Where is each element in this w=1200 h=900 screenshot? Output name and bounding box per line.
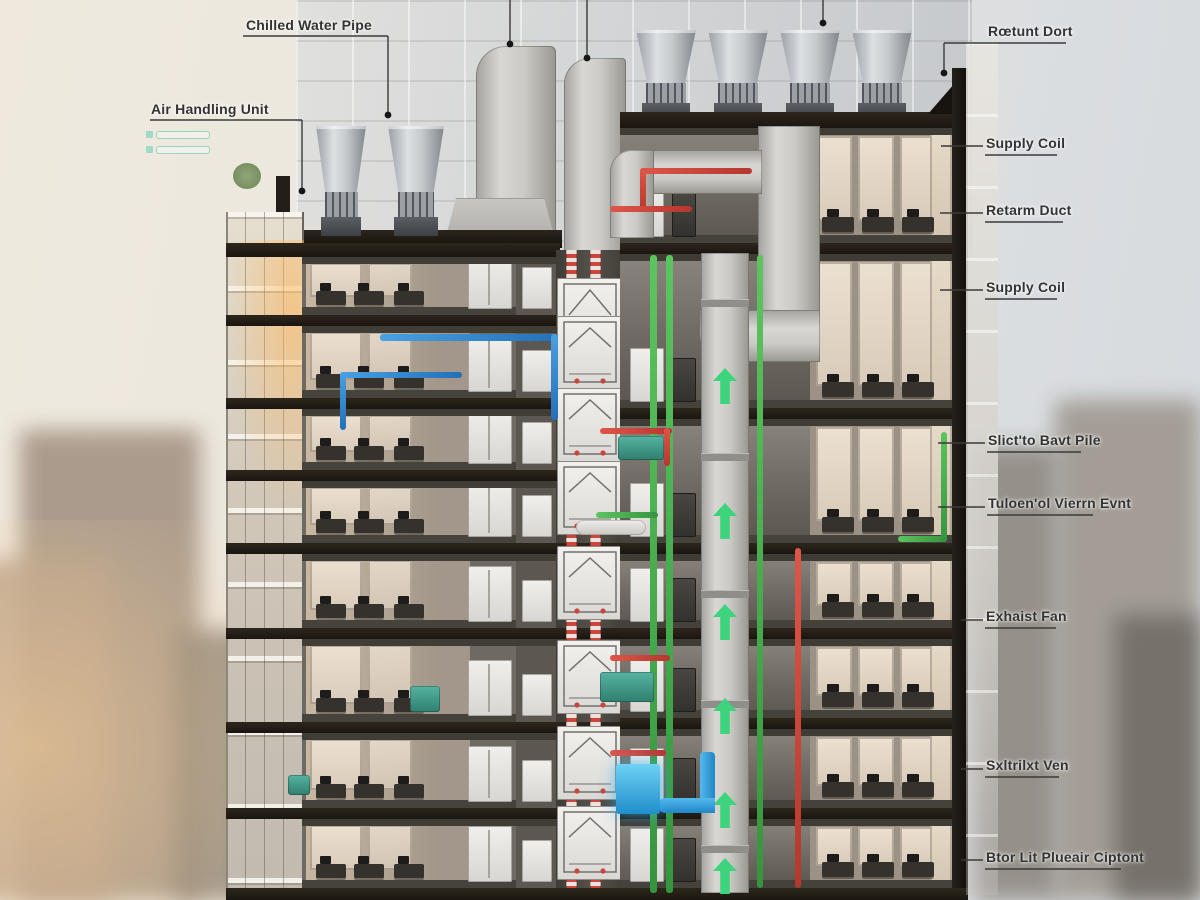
desk <box>862 602 894 617</box>
white-pipe-run <box>576 520 646 535</box>
monitor <box>907 509 919 517</box>
cooling-tower-shell <box>388 126 444 194</box>
office-window <box>858 262 894 386</box>
desk <box>316 519 346 533</box>
cabinet-doors <box>488 412 490 460</box>
utility-box <box>522 840 552 882</box>
monitor <box>320 366 331 374</box>
cooling-tower-roof-1 <box>636 30 696 118</box>
top-floor-duct-drop <box>610 150 654 238</box>
desk <box>354 784 384 798</box>
cooling-tower-base <box>321 217 361 236</box>
office-window <box>816 427 852 521</box>
chilled-pipe-h <box>380 334 558 341</box>
desk <box>862 862 894 877</box>
monitor <box>358 511 369 519</box>
left-tower-floor <box>302 819 560 888</box>
ahu-face-diagram <box>557 316 623 390</box>
red-run-h <box>610 655 670 661</box>
desk <box>316 604 346 618</box>
exhaust-fan-label: Exhaist Fan <box>986 608 1067 624</box>
monitor <box>907 684 919 692</box>
desk <box>394 446 424 460</box>
chiller-unit <box>600 672 654 702</box>
air-handling-unit-cabinet <box>557 546 623 620</box>
desk <box>902 782 934 797</box>
mech-cabinet-dark <box>672 668 696 712</box>
return-duct-label: Retarm Duct <box>986 202 1071 218</box>
ceiling-strip <box>302 554 560 561</box>
left-tower-floor <box>302 554 560 628</box>
mech-cabinet-dark <box>672 193 696 237</box>
floor-slab <box>226 315 560 326</box>
legend-chip <box>146 131 153 138</box>
monitor <box>320 596 331 604</box>
desk <box>354 864 384 878</box>
mech-cabinet <box>630 568 664 622</box>
monitor <box>867 684 879 692</box>
hot-water-pipe <box>795 548 801 888</box>
chilled-water-pipe-label: Chilled Water Pipe <box>246 17 372 33</box>
bright-blue-pipe-h <box>658 798 715 813</box>
desk <box>316 291 346 305</box>
office-window <box>310 645 362 704</box>
equipment-cabinet <box>468 566 512 622</box>
cabinet-doors <box>488 664 490 712</box>
cabinet-doors <box>488 340 490 388</box>
cooling-tower-base <box>394 217 439 236</box>
cooling-tower-left-1 <box>316 126 366 236</box>
office-window <box>816 262 852 386</box>
left-tower-floor <box>302 733 560 808</box>
utility-box <box>522 350 552 392</box>
monitor <box>867 209 879 217</box>
chilled-pipe-v <box>340 372 346 430</box>
desk <box>354 291 384 305</box>
monitor <box>907 854 919 862</box>
desk <box>354 604 384 618</box>
monitor <box>867 774 879 782</box>
supply-coil-lower-label: Supply Coil <box>986 279 1065 295</box>
cooling-tower-roof-2 <box>708 30 768 118</box>
legend-swatch-box <box>156 146 210 154</box>
cooling-tower-lattice <box>718 83 758 104</box>
desk <box>822 517 854 532</box>
mech-cabinet-dark <box>672 838 696 882</box>
monitor <box>907 594 919 602</box>
mech-cabinet <box>630 828 664 882</box>
monitor <box>320 856 331 864</box>
cooling-tower-lattice <box>325 192 358 218</box>
equipment-cabinet <box>468 826 512 882</box>
pipe-callout-label: Slict'to Bavt Pile <box>988 432 1101 448</box>
building-cutaway-illustration: Chilled Water PipeAir Handling UnitRœtun… <box>0 0 1200 900</box>
utility-box <box>522 760 552 802</box>
monitor <box>867 374 879 382</box>
red-run-h <box>610 206 692 212</box>
ahu-face-diagram <box>557 546 623 620</box>
monitor <box>398 438 409 446</box>
bottom-slab <box>226 888 968 900</box>
monitor <box>358 283 369 291</box>
utility-box <box>522 495 552 537</box>
monitor <box>320 283 331 291</box>
monitor <box>827 509 839 517</box>
mech-unit-teal <box>410 686 440 712</box>
cooling-tower-lattice <box>646 83 686 104</box>
monitor <box>358 596 369 604</box>
ceiling-strip <box>302 481 560 488</box>
monitor <box>358 690 369 698</box>
desk <box>394 864 424 878</box>
cooling-tower-roof-3 <box>780 30 840 118</box>
utility-box <box>522 267 552 309</box>
cabinet-doors <box>488 485 490 533</box>
red-run-v <box>664 428 670 466</box>
ahu-face-diagram <box>557 806 623 880</box>
ceiling-strip <box>302 326 560 333</box>
monitor <box>867 854 879 862</box>
floor-slab <box>226 808 560 819</box>
desk <box>822 862 854 877</box>
monitor <box>320 776 331 784</box>
floor-slab <box>226 628 560 639</box>
desk <box>316 446 346 460</box>
mech-cabinet-dark <box>672 358 696 402</box>
desk <box>862 382 894 397</box>
cooling-tower-shell <box>780 30 840 85</box>
monitor <box>867 594 879 602</box>
left-tower-interior <box>302 250 560 895</box>
cooling-tower-shell <box>708 30 768 85</box>
monitor <box>907 374 919 382</box>
mech-cabinet-dark <box>672 493 696 537</box>
return-duct-top-label: Rœtunt Dort <box>988 23 1073 39</box>
cooling-tower-lattice <box>790 83 830 104</box>
monitor <box>907 774 919 782</box>
desk <box>862 692 894 707</box>
cabinet-doors <box>488 257 490 305</box>
cabinet-doors <box>488 570 490 618</box>
side-vent-callout-label: Sxltrilxt Ven <box>986 757 1069 773</box>
monitor <box>827 209 839 217</box>
monitor <box>358 856 369 864</box>
desk <box>354 446 384 460</box>
desk <box>862 217 894 232</box>
desk <box>902 602 934 617</box>
cooling-tower-left-2 <box>388 126 444 236</box>
red-run-h <box>600 428 672 434</box>
cooling-tower-shell <box>316 126 366 194</box>
duct-joint <box>701 845 749 853</box>
desk <box>354 519 384 533</box>
left-tower-floor <box>302 481 560 543</box>
duct-joint <box>701 590 749 598</box>
desk <box>822 217 854 232</box>
desk <box>316 864 346 878</box>
floor-slab <box>226 543 560 554</box>
legend-row <box>146 145 210 155</box>
chilled-pipe-h <box>340 372 462 378</box>
floor-slab <box>226 470 560 481</box>
ahu-face-diagram <box>557 726 623 800</box>
equipment-cabinet <box>468 336 512 392</box>
legend-swatch-box <box>156 131 210 139</box>
heat-exchanger <box>618 436 664 460</box>
monitor <box>398 283 409 291</box>
equipment-cabinet <box>468 481 512 537</box>
monitor <box>358 776 369 784</box>
monitor <box>398 856 409 864</box>
desk <box>394 519 424 533</box>
supply-coil-upper-label: Supply Coil <box>986 135 1065 151</box>
supply-pipe-green <box>757 255 763 888</box>
office-window <box>310 739 362 790</box>
monitor <box>827 594 839 602</box>
glowing-chiller-unit <box>616 764 660 814</box>
desk <box>902 217 934 232</box>
cooling-tower-roof-4 <box>852 30 912 118</box>
cooling-tower-shell <box>852 30 912 85</box>
air-handling-unit-cabinet <box>557 726 623 800</box>
window-strip-right <box>930 258 952 402</box>
desk <box>354 698 384 712</box>
mech-cabinet-dark <box>672 578 696 622</box>
floor-slab <box>226 722 560 733</box>
mech-unit-teal <box>288 775 310 795</box>
monitor <box>398 776 409 784</box>
mech-cabinet <box>630 348 664 402</box>
desk <box>862 517 894 532</box>
equipment-callout-label: Btor Lit Plueair Ciptont <box>986 849 1144 865</box>
green-branch-pipe <box>941 432 947 542</box>
monitor <box>398 511 409 519</box>
ceiling-strip <box>302 733 560 740</box>
desk <box>316 698 346 712</box>
air-handling-unit-label: Air Handling Unit <box>151 101 269 117</box>
desk <box>902 382 934 397</box>
utility-box <box>522 580 552 622</box>
equipment-cabinet <box>468 408 512 464</box>
cabinet-doors <box>488 750 490 798</box>
monitor <box>907 209 919 217</box>
air-handling-unit-cabinet <box>557 806 623 880</box>
monitor <box>398 596 409 604</box>
left-tower-floor <box>302 257 560 315</box>
monitor <box>320 438 331 446</box>
ceiling-strip <box>302 639 560 646</box>
desk <box>316 784 346 798</box>
utility-box <box>522 674 552 716</box>
desk <box>902 692 934 707</box>
cooling-tower-lattice <box>862 83 902 104</box>
green-run-h <box>596 512 658 518</box>
monitor <box>320 511 331 519</box>
monitor <box>358 438 369 446</box>
legend-chip <box>146 146 153 153</box>
roof-plant <box>233 163 261 189</box>
ceiling-strip <box>302 819 560 826</box>
legend <box>146 130 210 160</box>
desk <box>822 602 854 617</box>
equipment-cabinet <box>468 746 512 802</box>
monitor <box>827 684 839 692</box>
ceiling-strip <box>302 257 560 264</box>
floor-slab <box>226 243 560 257</box>
red-run-h <box>640 168 752 174</box>
equipment-cabinet <box>468 660 512 716</box>
desk <box>902 862 934 877</box>
cabinet-doors <box>488 830 490 878</box>
green-branch-pipe-h <box>898 536 945 542</box>
desk <box>394 784 424 798</box>
red-run-h <box>610 750 666 756</box>
ahu-face-diagram <box>557 388 623 462</box>
mech-cabinet-dark <box>672 758 696 802</box>
desk <box>862 782 894 797</box>
desk <box>394 604 424 618</box>
desk <box>822 382 854 397</box>
vent-callout-label: Tuloen'ol Vierrn Evnt <box>988 495 1131 511</box>
chilled-pipe-v <box>551 334 558 420</box>
floor-slab <box>226 398 560 409</box>
office-window <box>858 427 894 521</box>
cooling-tower-lattice <box>398 192 435 218</box>
monitor <box>867 509 879 517</box>
cooling-tower-shell <box>636 30 696 85</box>
desk <box>822 692 854 707</box>
monitor <box>398 690 409 698</box>
air-handling-unit-cabinet <box>557 388 623 462</box>
desk <box>394 291 424 305</box>
monitor <box>320 690 331 698</box>
legend-row <box>146 130 210 140</box>
office-window <box>310 560 362 610</box>
duct-joint <box>701 299 749 307</box>
monitor <box>827 854 839 862</box>
monitor <box>827 374 839 382</box>
air-handling-unit-cabinet <box>557 316 623 390</box>
desk <box>822 782 854 797</box>
duct-joint <box>701 453 749 461</box>
desk <box>902 517 934 532</box>
utility-box <box>522 422 552 464</box>
monitor <box>827 774 839 782</box>
